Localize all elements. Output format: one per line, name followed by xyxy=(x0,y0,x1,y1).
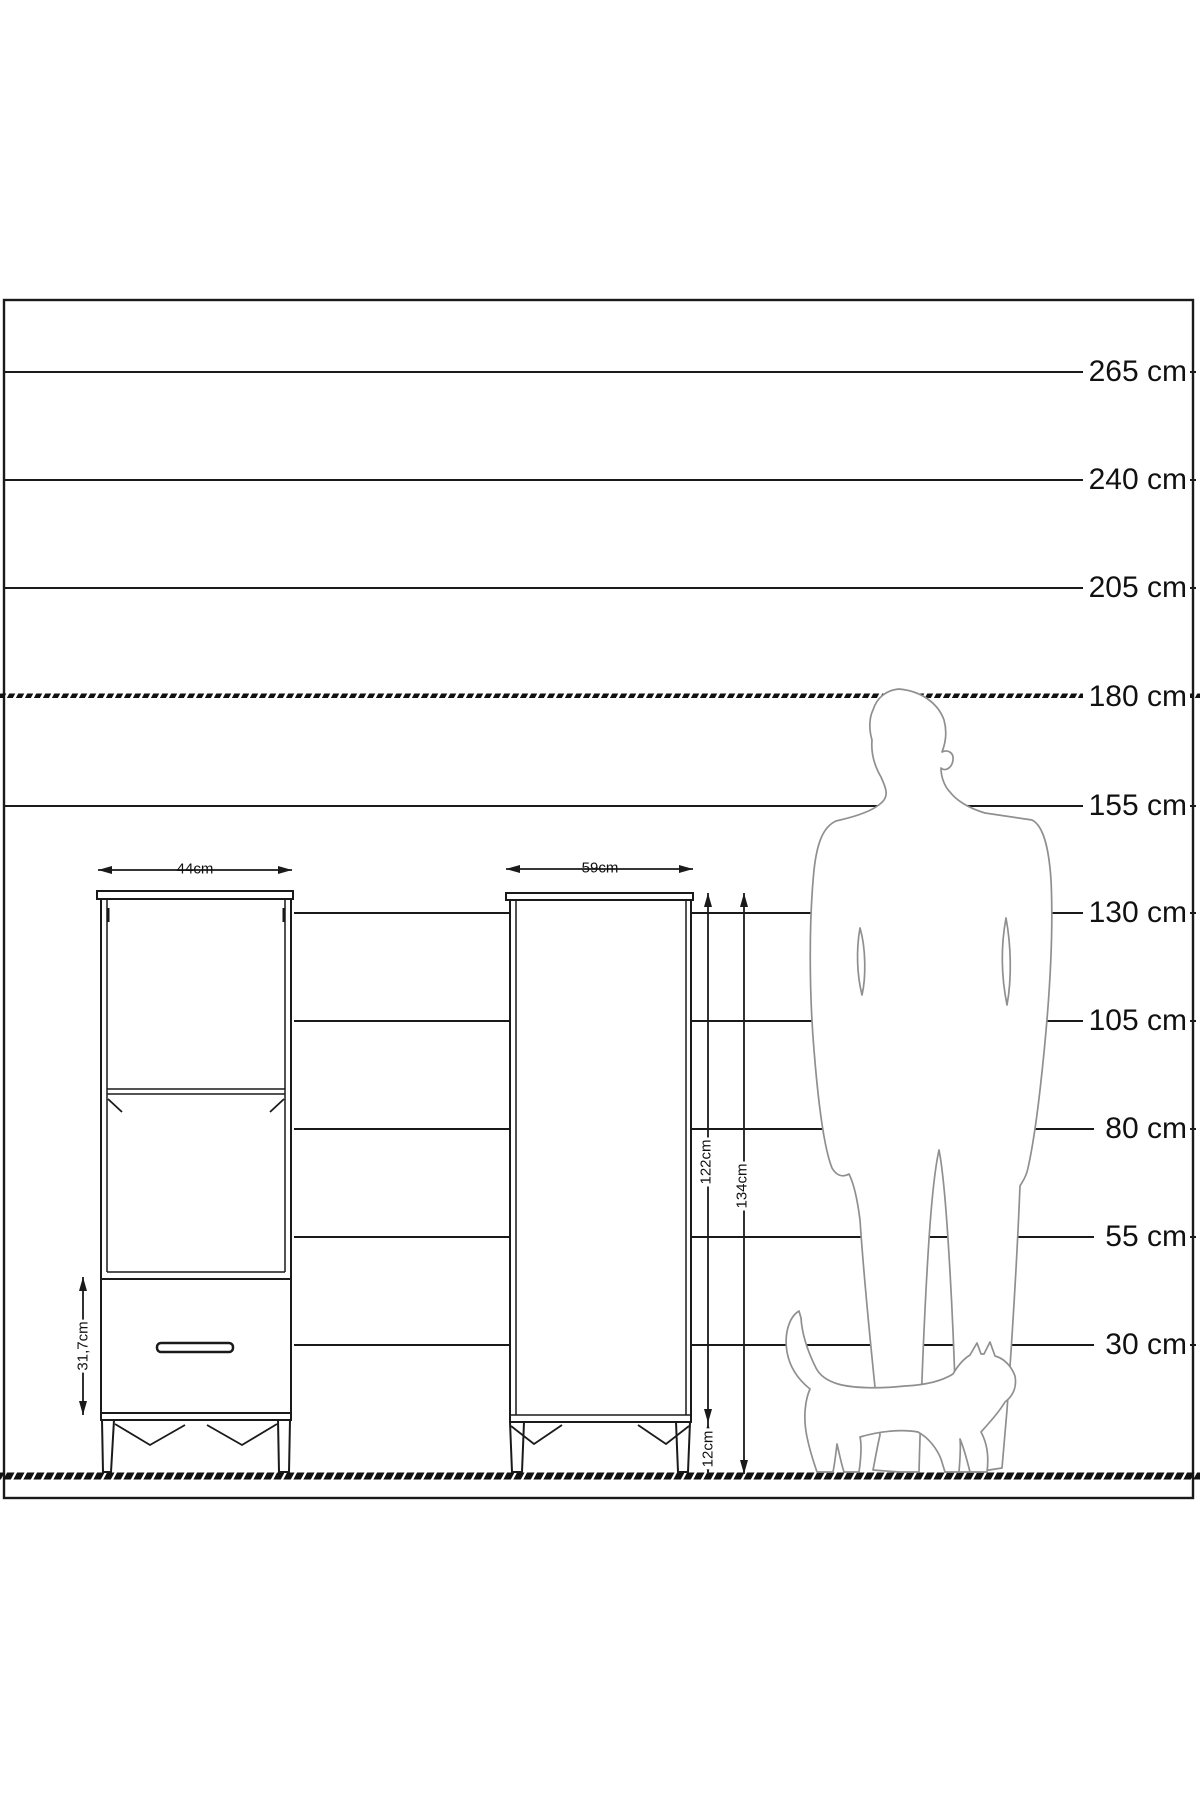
scale-label-240: 240 cm xyxy=(1083,465,1190,495)
dim-label-leg-height: 12cm xyxy=(701,1429,716,1470)
dim-label-drawer-height: 31,7cm xyxy=(76,1319,91,1372)
dashed-180cm-line xyxy=(0,694,1200,699)
left-cabinet xyxy=(97,891,293,1472)
dim-label-body-height: 122cm xyxy=(699,1137,714,1186)
right-cabinet-leg xyxy=(510,1422,524,1472)
right-cabinet-leg xyxy=(676,1422,690,1472)
dimension-diagram: 265 cm 240 cm 205 cm 180 cm 155 cm 130 c… xyxy=(0,0,1200,1800)
scale-label-130: 130 cm xyxy=(1083,898,1190,928)
scale-label-55: 55 cm xyxy=(1099,1222,1190,1252)
scale-label-155: 155 cm xyxy=(1083,791,1190,821)
left-cabinet-leg xyxy=(102,1420,114,1472)
scale-label-80: 80 cm xyxy=(1099,1114,1190,1144)
scale-label-180: 180 cm xyxy=(1083,682,1190,712)
scale-label-265: 265 cm xyxy=(1083,357,1190,387)
diagram-drawing xyxy=(0,0,1200,1800)
dim-label-left-width: 44cm xyxy=(177,862,214,877)
right-cabinet xyxy=(506,893,693,1472)
right-cabinet-top xyxy=(506,893,693,900)
drawer-handle xyxy=(157,1343,233,1352)
left-cabinet-top xyxy=(97,891,293,899)
left-cabinet-leg xyxy=(278,1420,290,1472)
dim-label-right-width: 59cm xyxy=(582,861,619,876)
scale-label-205: 205 cm xyxy=(1083,573,1190,603)
scale-label-30: 30 cm xyxy=(1099,1330,1190,1360)
right-cabinet-body xyxy=(510,900,691,1422)
scale-label-105: 105 cm xyxy=(1083,1006,1190,1036)
ground-line xyxy=(0,1473,1200,1480)
dim-label-total-height: 134cm xyxy=(735,1161,750,1210)
